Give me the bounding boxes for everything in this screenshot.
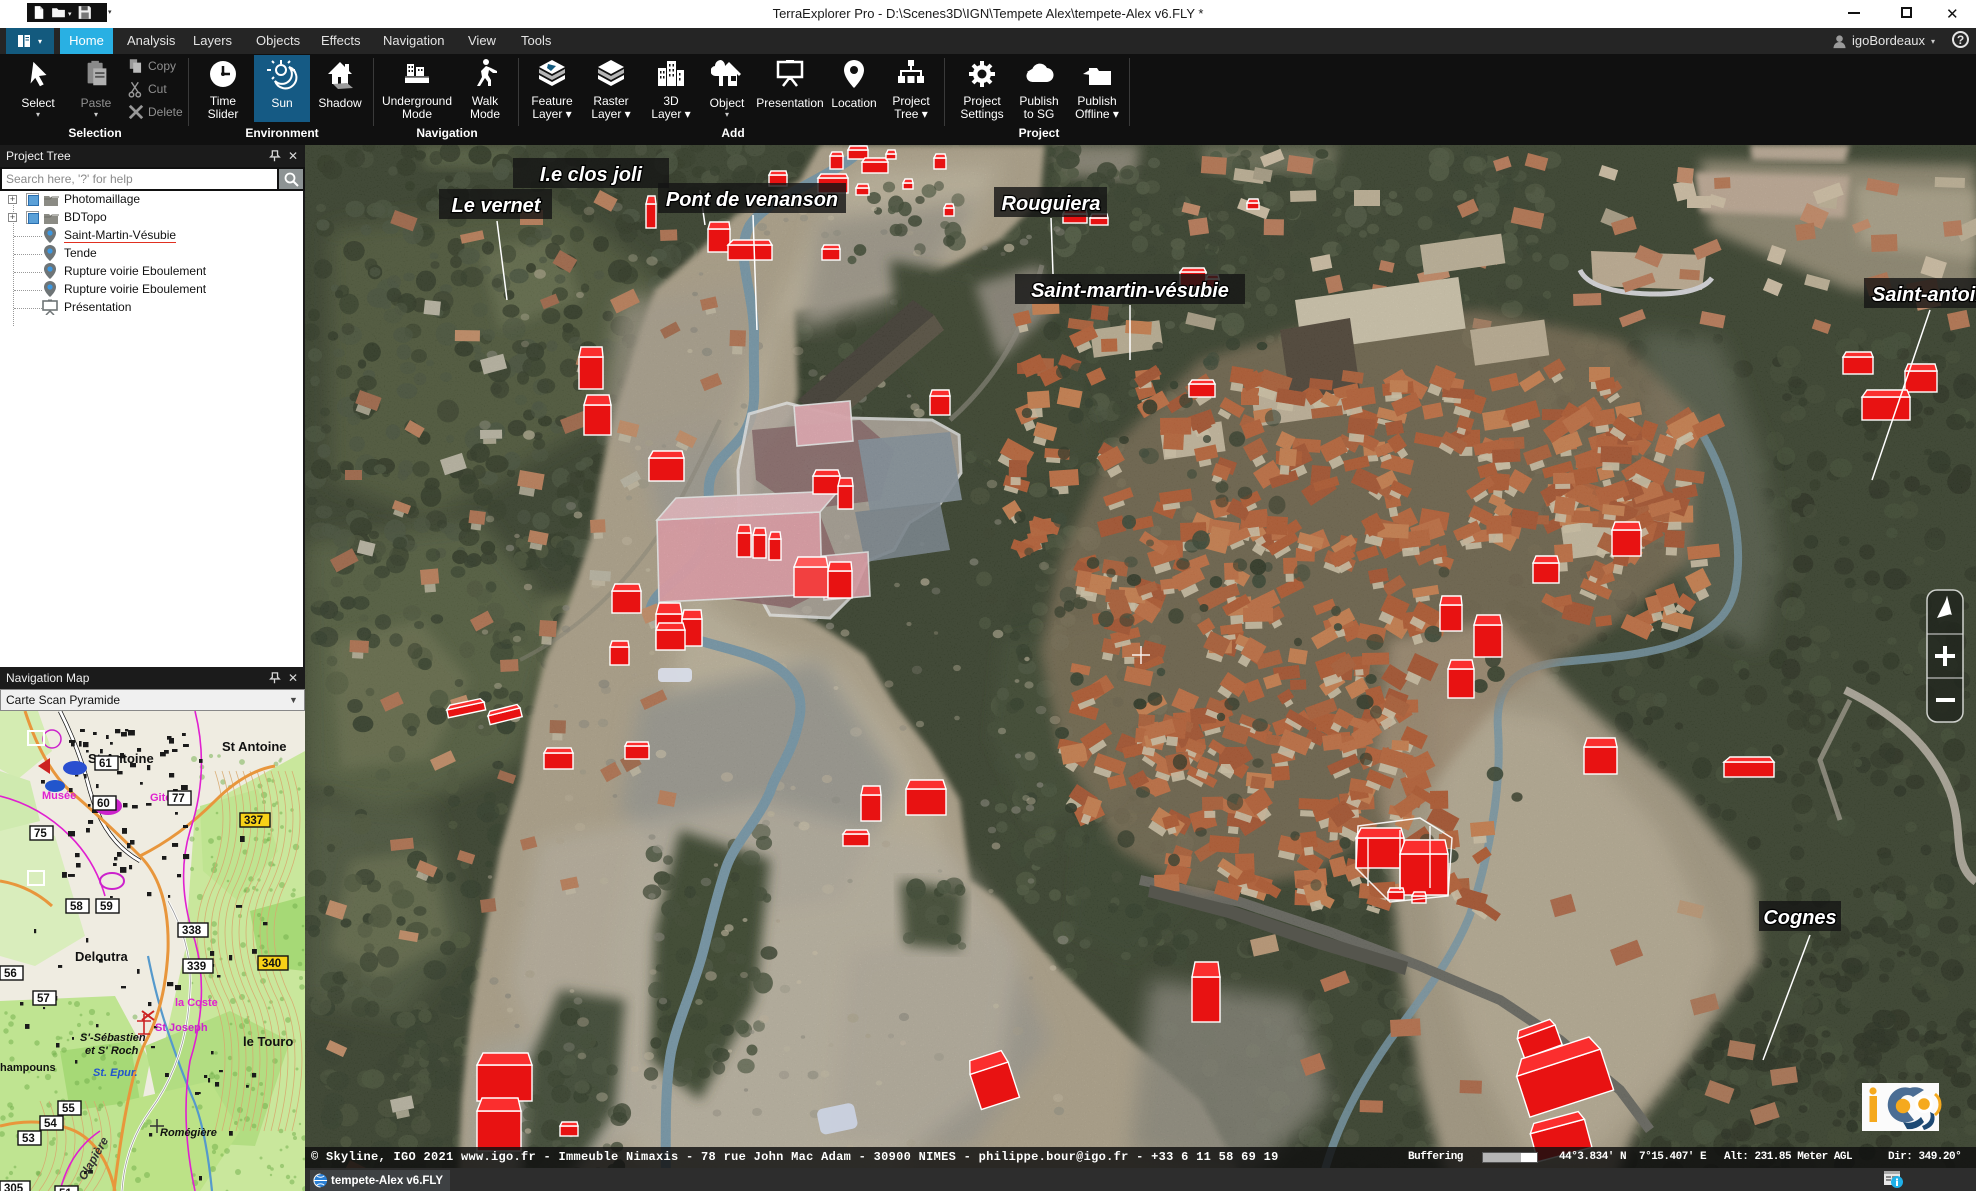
svg-text:la Coste: la Coste (175, 997, 218, 1009)
svg-text:Saint-antoine: Saint-antoine (1872, 284, 1976, 306)
svg-text:58: 58 (70, 901, 83, 913)
svg-text:St Antoine: St Antoine (222, 739, 287, 754)
svg-text:57: 57 (37, 993, 50, 1005)
svg-text:59: 59 (100, 901, 113, 913)
svg-text:337: 337 (244, 815, 263, 827)
svg-text:St Joseph: St Joseph (155, 1022, 208, 1034)
svg-text:Pont de venanson: Pont de venanson (666, 189, 838, 211)
svg-text:St. Epur.: St. Epur. (93, 1067, 138, 1079)
svg-text:I.e clos joli: I.e clos joli (540, 164, 643, 186)
svg-text:75: 75 (34, 828, 47, 840)
svg-text:Cognes: Cognes (1763, 907, 1836, 929)
svg-text:55: 55 (62, 1103, 75, 1115)
svg-text:S'-Sébastien: S'-Sébastien (80, 1032, 146, 1044)
svg-text:Musée: Musée (42, 790, 76, 802)
svg-text:305: 305 (4, 1183, 24, 1191)
svg-text:56: 56 (4, 968, 17, 980)
svg-text:hampouns: hampouns (0, 1062, 56, 1074)
svg-text:60: 60 (97, 798, 110, 810)
svg-text:339: 339 (187, 961, 206, 973)
svg-text:53: 53 (22, 1133, 35, 1145)
svg-text:et S' Roch: et S' Roch (85, 1045, 139, 1057)
svg-text:77: 77 (172, 793, 185, 805)
svg-text:le Touro: le Touro (243, 1034, 293, 1049)
svg-text:Saint-martin-vésubie: Saint-martin-vésubie (1031, 280, 1229, 302)
svg-text:Romégière: Romégière (160, 1127, 217, 1139)
svg-text:54: 54 (44, 1118, 57, 1130)
svg-text:340: 340 (262, 958, 281, 970)
svg-text:Le vernet: Le vernet (452, 195, 542, 217)
svg-text:338: 338 (182, 925, 202, 937)
svg-text:Rouguiera: Rouguiera (1002, 193, 1101, 215)
svg-text:61: 61 (99, 758, 112, 770)
svg-text:Deloutra: Deloutra (75, 949, 129, 964)
